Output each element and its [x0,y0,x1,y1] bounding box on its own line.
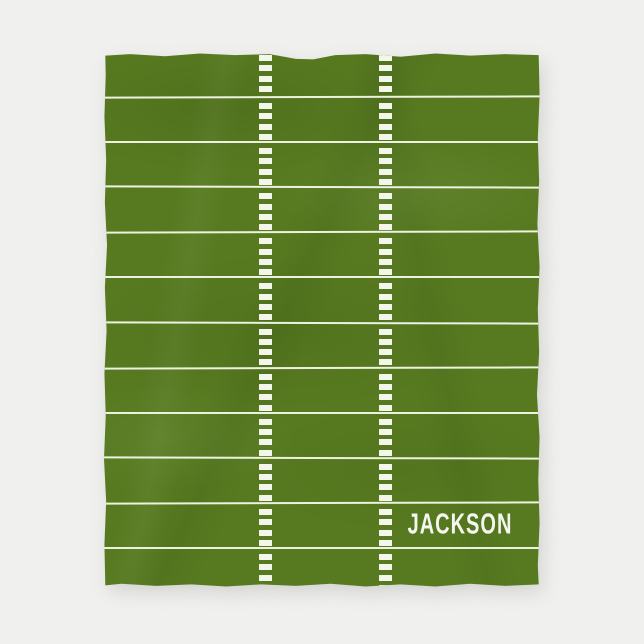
hash-mark [259,329,272,335]
hash-mark [259,304,272,310]
hash-mark [259,124,272,130]
hash-mark [259,585,272,587]
hash-mark [379,405,392,411]
hash-mark [379,384,392,390]
hash-mark [259,148,272,154]
hash-mark [379,495,392,501]
hash-mark [259,339,272,345]
hash-mark [379,269,392,275]
hash-mark [259,76,272,82]
hash-mark [379,134,392,140]
hash-mark [259,495,272,501]
hash-mark [259,540,272,546]
hash-mark [379,55,392,61]
hash-mark [379,359,392,365]
hash-mark [379,283,392,289]
hash-mark [259,349,272,355]
hash-mark [259,214,272,220]
hash-mark [379,65,392,71]
hash-mark [259,113,272,119]
yard-line [104,412,540,414]
hash-mark [379,204,392,210]
yard-line [104,456,540,459]
hash-mark [259,554,272,560]
hash-mark [259,193,272,199]
hash-mark [259,384,272,390]
hash-mark [379,464,392,470]
yard-line [104,141,540,143]
hash-mark [259,394,272,400]
hash-mark [259,419,272,425]
hash-mark [379,329,392,335]
hash-mark [259,464,272,470]
hash-mark [379,450,392,456]
hash-mark [379,148,392,154]
hash-mark [259,575,272,581]
hash-mark [259,249,272,255]
hash-mark [259,450,272,456]
hash-mark [259,86,272,92]
hash-mark [379,314,392,320]
hash-mark [259,294,272,300]
hash-mark [259,169,272,175]
hash-mark [259,259,272,265]
hash-mark [379,530,392,536]
hash-mark [379,564,392,570]
hash-mark [259,269,272,275]
hash-mark [259,65,272,71]
hash-mark [379,113,392,119]
hash-mark [379,224,392,230]
hash-mark [259,484,272,490]
hash-mark [379,339,392,345]
yard-line [104,276,540,278]
hash-mark [259,439,272,445]
hash-mark [379,419,392,425]
hash-mark [259,530,272,536]
hash-mark [259,314,272,320]
yard-line [104,231,540,234]
hash-mark [379,585,392,587]
hash-mark [379,158,392,164]
hash-mark [379,124,392,130]
product-photo: JACKSON [0,0,644,644]
personalized-name-text: JACKSON [400,494,520,556]
hash-mark [379,103,392,109]
hash-mark [379,294,392,300]
hash-mark [379,509,392,515]
hash-mark [379,554,392,560]
hash-mark [379,193,392,199]
hash-mark [379,86,392,92]
hash-mark [379,238,392,244]
hash-mark [379,249,392,255]
hash-mark [259,103,272,109]
hash-mark [259,283,272,289]
hash-mark [379,474,392,480]
hash-mark [259,179,272,185]
hash-mark [259,519,272,525]
hash-mark [379,259,392,265]
hash-mark [259,474,272,480]
hash-mark [379,519,392,525]
hash-mark [259,405,272,411]
hash-mark [379,394,392,400]
hash-mark [379,429,392,435]
hash-mark [379,439,392,445]
football-field-blanket: JACKSON [104,53,540,587]
hash-mark [379,179,392,185]
blanket-shadow-wrap: JACKSON [104,53,540,587]
hash-mark [379,540,392,546]
hash-mark [379,349,392,355]
hash-mark [259,238,272,244]
hash-mark [259,564,272,570]
hash-mark [379,76,392,82]
hash-mark [379,374,392,380]
hash-mark [259,374,272,380]
hash-mark [259,509,272,515]
hash-mark [379,304,392,310]
yard-line [104,366,540,369]
yard-line [104,321,540,324]
hash-mark [259,134,272,140]
hash-mark [379,484,392,490]
hash-mark [259,224,272,230]
hash-mark [259,158,272,164]
yard-line [104,95,540,98]
hash-mark [379,214,392,220]
hash-mark [259,359,272,365]
hash-mark [379,169,392,175]
hash-mark [379,575,392,581]
hash-mark [259,429,272,435]
hash-mark [259,204,272,210]
hash-mark [259,55,272,61]
yard-line [104,186,540,189]
